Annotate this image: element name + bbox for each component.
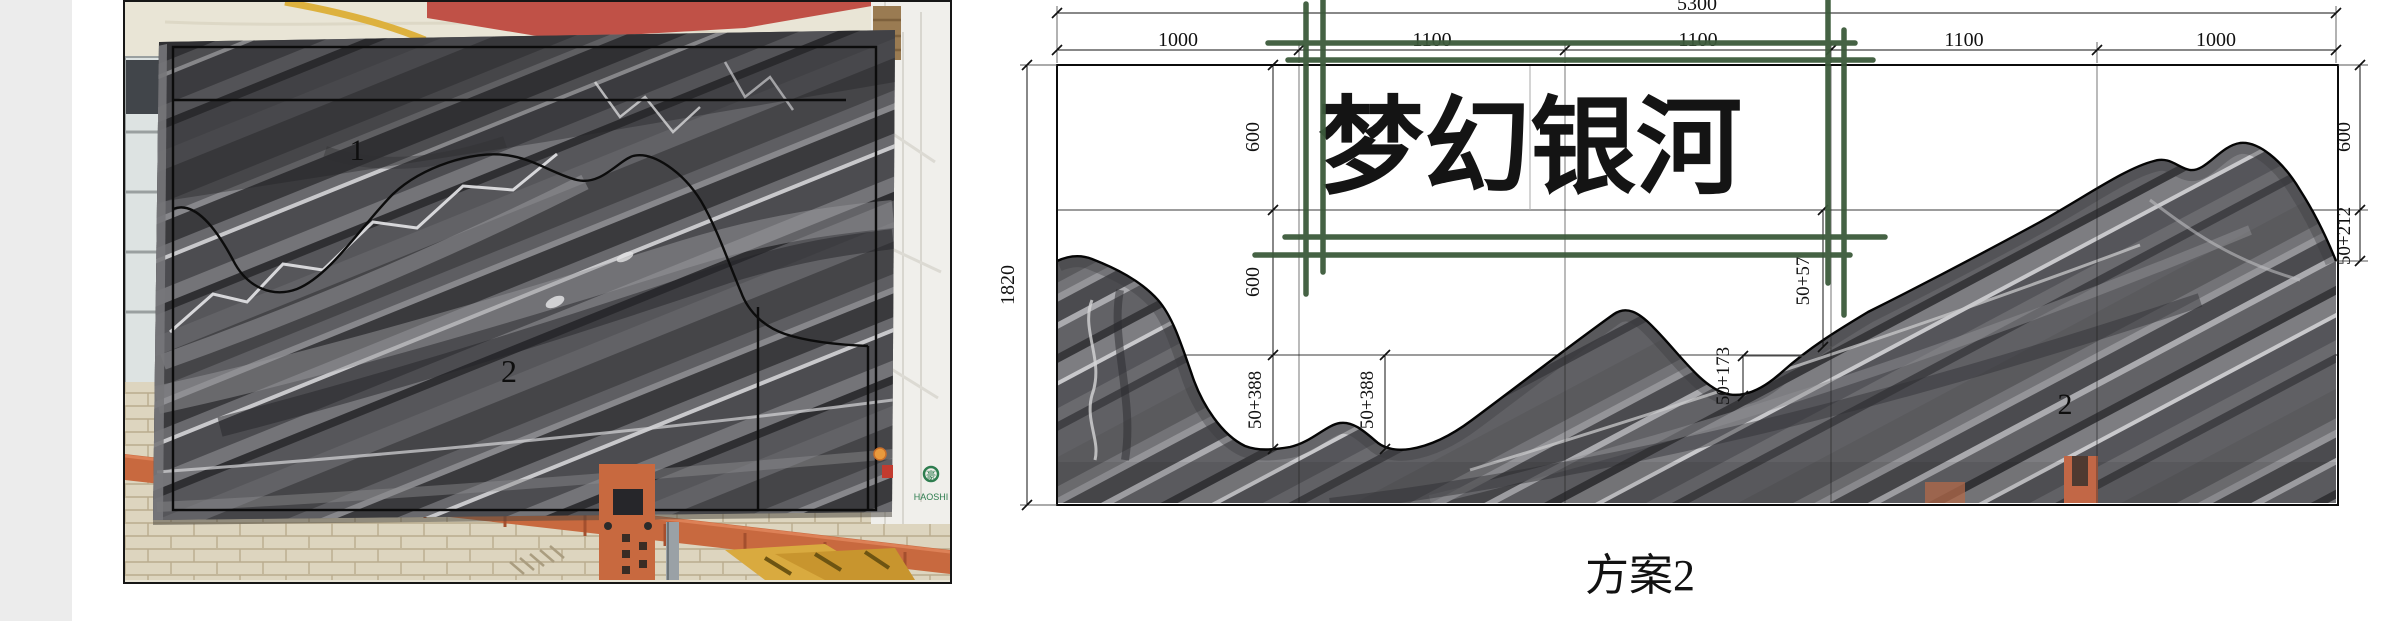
dim-mid-saddle: 50+173: [1713, 347, 1734, 405]
dim-seg-3: 1100: [1678, 29, 1717, 51]
slab-photo: 豪 HAOSHI: [123, 0, 952, 584]
page-margin-strip: [0, 0, 72, 621]
dim-right-row2: 50+212: [2334, 207, 2355, 265]
marble-slab: 1 2: [153, 30, 895, 522]
slab-red-tag: [882, 465, 893, 478]
dim-left-row3: 50+388: [1245, 371, 1266, 429]
cad-elevation: 5300 1000 1100 1100 1100 1000 1820 600 6…: [1000, 0, 2400, 621]
dim-seg-4: 1100: [1944, 29, 1983, 51]
dim-seg-2: 1100: [1412, 29, 1451, 51]
dim-seg-1: 1000: [1158, 29, 1198, 51]
wrap-logo-text: HAOSHI: [914, 492, 949, 502]
dim-height: 1820: [1000, 265, 1019, 305]
slab-sticker: [874, 448, 886, 460]
dim-total-width: 5300: [1677, 0, 1717, 15]
layout-sheet: 豪 HAOSHI: [0, 0, 2400, 621]
dim-seg-5: 1000: [2196, 29, 2236, 51]
wrap-logo-mark: 豪: [926, 469, 936, 482]
crane-mast: [599, 464, 655, 580]
slab-photo-svg: 豪 HAOSHI: [125, 2, 950, 582]
dim-left-row2: 600: [1242, 267, 1264, 297]
design-title: 梦幻银河: [1318, 89, 1742, 207]
photo-piece-1-label: 1: [350, 134, 365, 167]
dim-right-row1: 600: [2333, 122, 2355, 152]
dim-mid-valley: 50+388: [1357, 371, 1378, 429]
drawing-piece-2-label: 2: [2058, 388, 2073, 421]
dim-left-row1: 600: [1242, 122, 1264, 152]
photo-piece-2-label: 2: [501, 353, 517, 389]
dim-mid-slope: 50+57: [1793, 257, 1814, 306]
plan-caption: 方案2: [1585, 551, 1695, 600]
